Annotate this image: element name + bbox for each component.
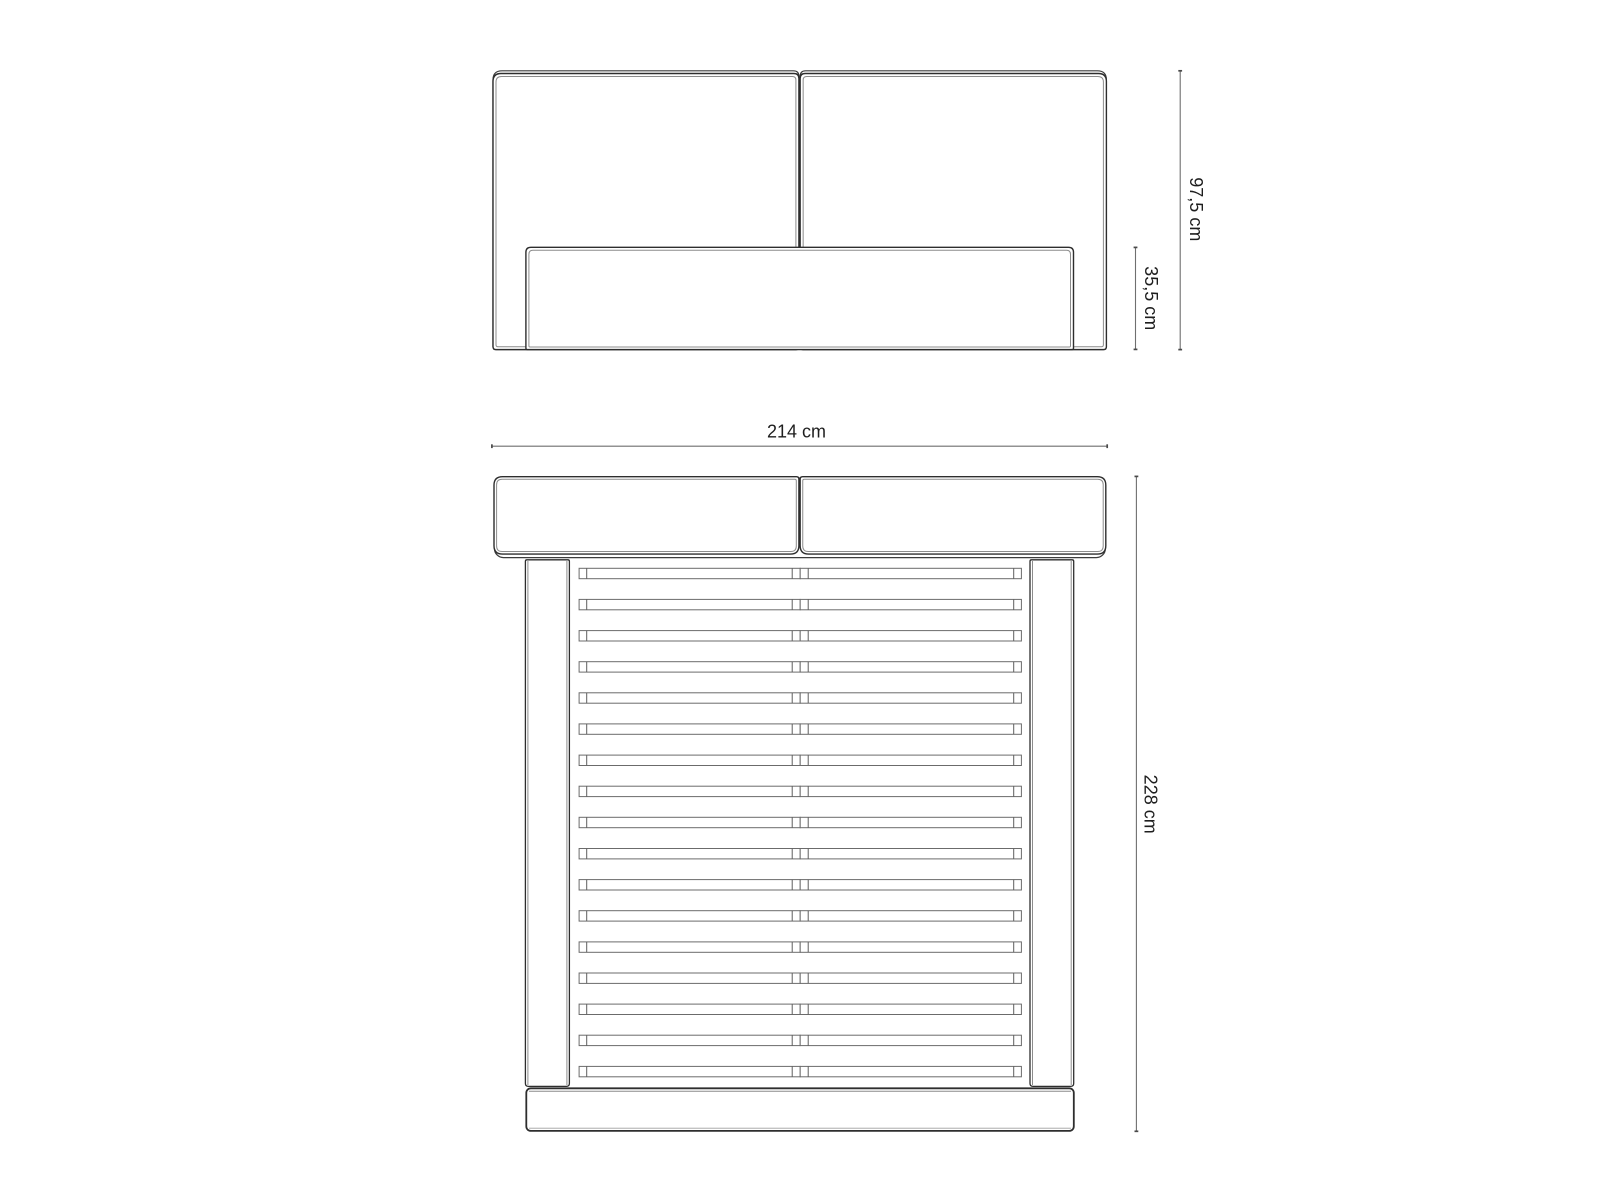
- svg-text:97,5 cm: 97,5 cm: [1186, 177, 1206, 241]
- svg-text:35,5 cm: 35,5 cm: [1141, 266, 1161, 330]
- svg-text:228 cm: 228 cm: [1141, 775, 1161, 834]
- svg-text:214 cm: 214 cm: [767, 422, 826, 442]
